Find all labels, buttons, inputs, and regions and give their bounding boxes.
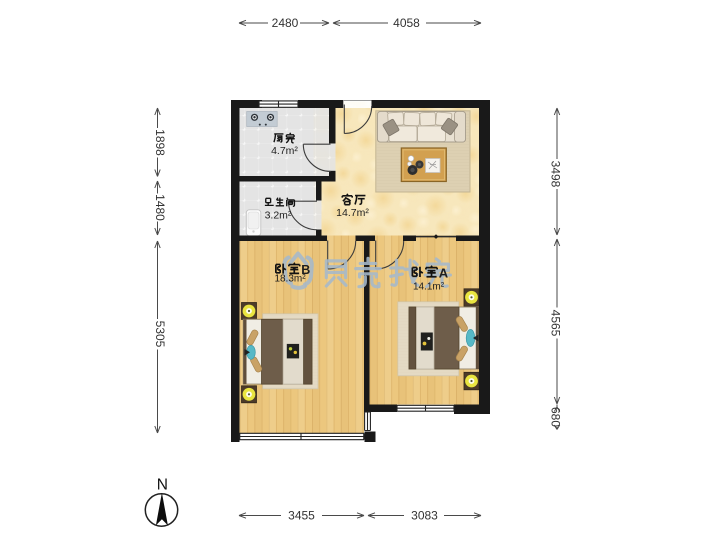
svg-text:4.7m²: 4.7m² bbox=[271, 145, 298, 157]
svg-text:14.7m²: 14.7m² bbox=[336, 207, 369, 219]
svg-text:N: N bbox=[157, 477, 168, 494]
svg-text:4058: 4058 bbox=[393, 16, 420, 30]
svg-text:680: 680 bbox=[548, 407, 562, 427]
svg-text:1480: 1480 bbox=[153, 194, 167, 221]
svg-text:14.1m²: 14.1m² bbox=[413, 282, 445, 293]
svg-text:2480: 2480 bbox=[272, 16, 299, 30]
svg-text:3083: 3083 bbox=[411, 509, 438, 523]
svg-text:A: A bbox=[439, 266, 449, 281]
svg-text:3.2m²: 3.2m² bbox=[265, 210, 292, 222]
svg-text:1898: 1898 bbox=[153, 129, 167, 156]
svg-text:18.3m²: 18.3m² bbox=[274, 274, 306, 285]
svg-text:3498: 3498 bbox=[548, 161, 562, 188]
svg-text:5305: 5305 bbox=[153, 321, 167, 348]
svg-text:3455: 3455 bbox=[288, 509, 315, 523]
svg-text:4565: 4565 bbox=[548, 310, 562, 337]
